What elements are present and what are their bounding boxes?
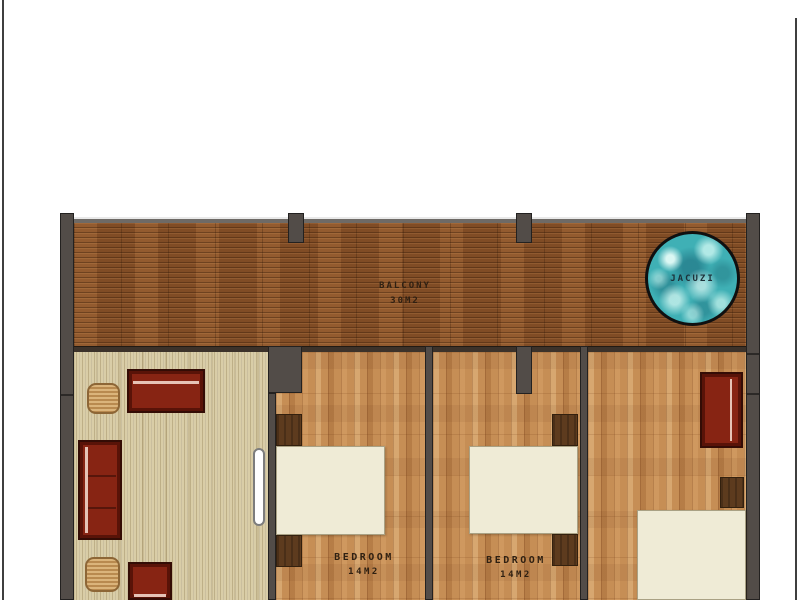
railing-post-2 [516,213,532,243]
coffee-table-2 [85,557,120,592]
wall-bedroom2-bedroom3 [580,346,588,600]
wall-joint [747,353,759,355]
wall-living-bedroom1-pier [268,346,302,393]
bedroom-2-label: BEDROOM 14M2 [470,553,562,583]
balcony-railing [74,217,746,223]
sofa-bottom [128,562,172,600]
sofa-top [127,369,205,413]
balcony-partition-wall [60,346,760,352]
bed3-sofa [700,372,743,448]
sofa-left [78,440,122,540]
sofa-cushion-seam [88,507,116,509]
bed1-mattress [276,446,385,535]
floor-plan: BALCONY 30M2 JACUZI BEDR [0,0,800,600]
canvas-border-right [795,18,797,600]
sofa-back-line [730,379,732,441]
wall-bedroom1-bedroom2 [425,346,433,600]
exterior-wall-left [60,213,74,600]
balcony-label: BALCONY 30M2 [345,279,465,309]
bedroom2-pier [516,346,532,394]
jacuzzi: JACUZI [645,231,740,326]
canvas-border-left [2,0,4,600]
bedroom-2-area: 14M2 [470,568,562,583]
bedroom-1-label: BEDROOM 14M2 [318,550,410,580]
railing-post-1 [288,213,304,243]
exterior-wall-right [746,213,760,600]
bed2-nightstand-top [552,414,578,446]
bed1-nightstand-bottom [276,535,302,567]
door-leaf [253,448,265,526]
bed1-nightstand-top [276,414,302,446]
bedroom-1-name: BEDROOM [318,550,410,565]
balcony-name: BALCONY [345,279,465,294]
jacuzzi-label: JACUZI [670,274,715,284]
bedroom-2-name: BEDROOM [470,553,562,568]
coffee-table-1 [87,383,120,414]
bed2-mattress [469,446,578,534]
balcony-area: 30M2 [345,294,465,309]
sofa-back-line [134,594,166,597]
sofa-back-line [133,381,199,384]
sofa-back-line [85,447,88,533]
bed3-mattress [637,510,746,600]
bedroom-1-area: 14M2 [318,565,410,580]
wall-living-bedroom1 [268,393,276,600]
bed3-nightstand [720,477,744,508]
wall-joint [747,393,759,395]
wall-joint [61,394,73,396]
sofa-cushion-seam [88,475,116,477]
